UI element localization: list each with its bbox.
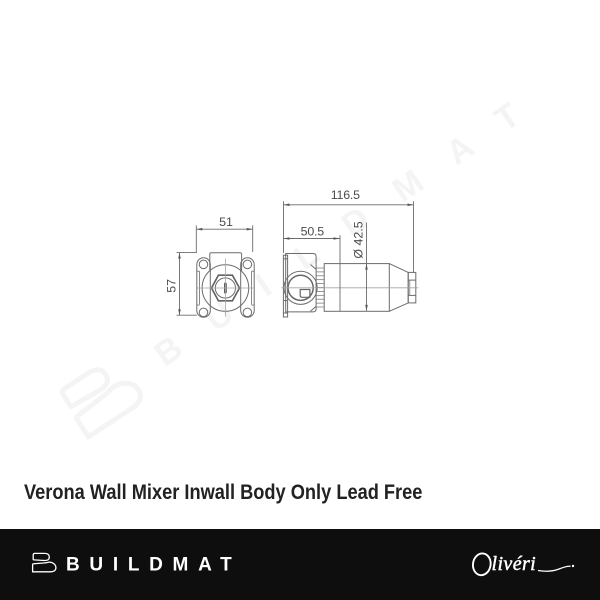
svg-text:51: 51 xyxy=(219,215,233,229)
svg-text:BUILDMAT: BUILDMAT xyxy=(66,555,241,576)
svg-text:57: 57 xyxy=(164,279,178,293)
svg-text:50.5: 50.5 xyxy=(301,225,325,239)
svg-text:Ø 42.5: Ø 42.5 xyxy=(352,221,366,258)
svg-text:116.5: 116.5 xyxy=(331,188,360,202)
svg-text:livéri: livéri xyxy=(492,553,537,575)
